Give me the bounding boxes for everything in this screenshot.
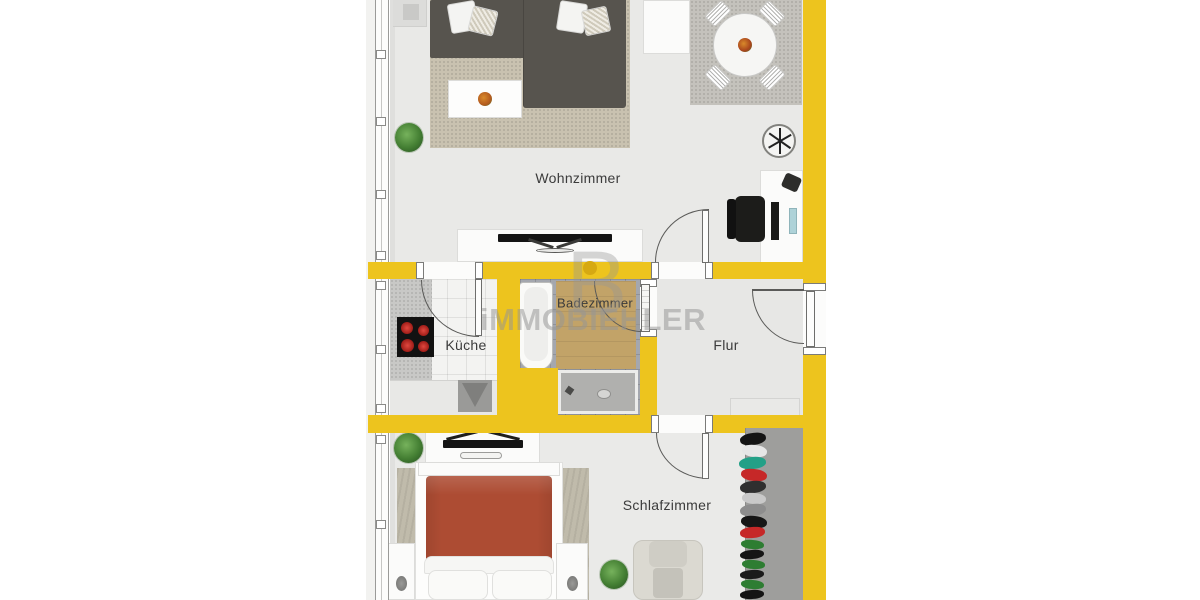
burner <box>401 322 413 334</box>
bed-duvet <box>426 476 552 562</box>
room-label-kitchen: Küche <box>445 337 486 353</box>
window-glass-line <box>381 0 382 600</box>
bedroom-tv <box>443 440 523 448</box>
window-joint <box>376 117 386 126</box>
wall-kitchen-bath <box>497 279 520 415</box>
bedroom-tv-tray <box>460 452 502 459</box>
potted-plant <box>394 433 423 463</box>
window-joint <box>376 345 386 354</box>
nightstand <box>387 543 415 600</box>
window-joint <box>376 251 386 260</box>
wall-vent-box <box>393 0 427 27</box>
door-jamb <box>705 415 713 433</box>
floorplan-page: Wohnzimmer Küche Badezimmer Flur Schlafz… <box>0 0 1200 600</box>
kitchen-doorway <box>420 262 479 279</box>
vent-grille <box>403 4 419 20</box>
wall-bath-corner <box>520 368 558 415</box>
nightstand-lamp <box>396 576 407 591</box>
bedroom-doorway <box>655 415 709 433</box>
room-label-living: Wohnzimmer <box>535 170 620 186</box>
window-joint <box>376 404 386 413</box>
sideboard <box>643 0 690 54</box>
window-joint <box>376 281 386 290</box>
door-jamb <box>651 415 659 433</box>
nightstand <box>556 543 588 600</box>
office-chair <box>735 196 765 242</box>
office-chair-back <box>727 199 736 239</box>
door-jamb <box>803 283 826 291</box>
sink-basin <box>462 383 488 407</box>
keyboard <box>789 208 797 234</box>
exterior-strip <box>366 0 375 600</box>
bed-footboard <box>418 462 560 476</box>
bed-pillow <box>492 570 552 600</box>
monitor <box>771 202 779 240</box>
room-label-hall: Flur <box>713 337 738 353</box>
hall-living-door <box>702 210 709 263</box>
watermark-text: iMMOBIEHLER <box>480 302 706 338</box>
cooktop <box>397 317 434 357</box>
fruit-bowl <box>478 92 492 106</box>
bed-pillow <box>428 570 488 600</box>
window-joint <box>376 190 386 199</box>
burner <box>418 341 429 352</box>
potted-plant <box>600 560 628 589</box>
door-jamb <box>651 262 659 279</box>
wall-clock-icon <box>762 124 796 158</box>
window-band <box>375 0 389 600</box>
armchair <box>633 540 703 600</box>
window-joint <box>376 435 386 444</box>
shower-faucet <box>565 386 575 396</box>
burner <box>418 325 429 336</box>
door-jamb <box>705 262 713 279</box>
shower <box>558 370 638 414</box>
sofa-pillow <box>581 6 612 37</box>
inner-wall-bottom <box>368 415 803 433</box>
armchair-seat <box>653 568 683 598</box>
door-jamb <box>803 347 826 355</box>
fruit-bowl <box>738 38 752 52</box>
window-joint <box>376 50 386 59</box>
armchair-back <box>649 541 687 567</box>
bedroom-door <box>702 433 709 479</box>
potted-plant <box>395 123 423 152</box>
entrance-door <box>806 291 815 347</box>
window-joint <box>376 520 386 529</box>
nightstand-lamp <box>567 576 578 591</box>
hall-living-doorway <box>655 262 709 279</box>
door-jamb <box>475 262 483 279</box>
room-label-bedroom: Schlafzimmer <box>623 497 711 513</box>
shower-drain <box>597 389 611 399</box>
burner <box>401 339 414 352</box>
kitchen-sink <box>458 380 492 412</box>
door-jamb <box>416 262 424 279</box>
